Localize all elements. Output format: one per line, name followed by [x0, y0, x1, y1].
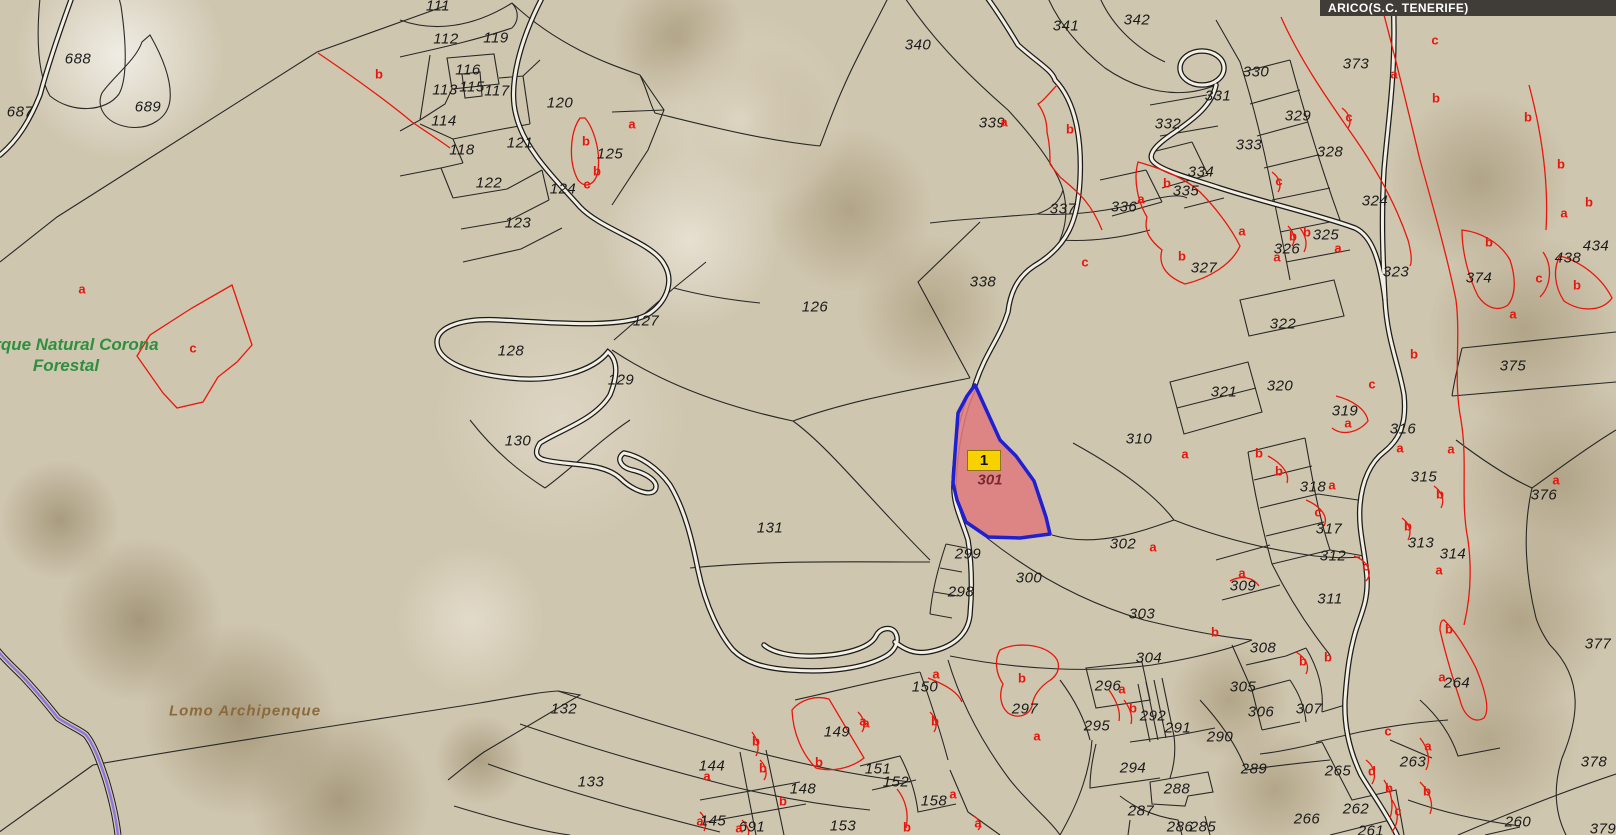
subparcel-label-a: a: [1149, 540, 1156, 555]
subparcel-label-c: c: [1362, 559, 1369, 574]
parcel-label-291: 291: [1165, 720, 1192, 737]
parcel-label-285: 285: [1190, 819, 1217, 835]
subparcel-label-b: b: [1432, 91, 1440, 106]
subparcel-label-b: b: [1445, 622, 1453, 637]
highlighted-parcel-number: 301: [977, 472, 1002, 489]
subparcel-label-c: c: [1431, 33, 1438, 48]
parcel-label-125: 125: [597, 146, 624, 163]
subparcel-label-a: a: [1118, 682, 1125, 697]
parcel-label-329: 329: [1285, 108, 1312, 125]
subparcel-label-b: b: [1410, 347, 1418, 362]
subparcel-label-b: b: [1324, 650, 1332, 665]
parcel-label-434: 434: [1583, 238, 1610, 255]
parcel-label-321: 321: [1211, 384, 1238, 401]
parcel-label-379: 379: [1590, 821, 1616, 835]
parcel-label-303: 303: [1129, 606, 1156, 623]
parcel-label-340: 340: [905, 37, 932, 54]
subparcel-label-b: b: [1303, 225, 1311, 240]
subparcel-label-a: a: [1435, 563, 1442, 578]
parcel-label-315: 315: [1411, 469, 1438, 486]
parcel-label-331: 331: [1205, 88, 1232, 105]
subparcel-label-c: c: [1081, 255, 1088, 270]
subparcel-label-c: c: [583, 177, 590, 192]
subparcel-label-a: a: [1552, 473, 1559, 488]
parcel-label-299: 299: [955, 546, 982, 563]
parcel-label-158: 158: [921, 793, 948, 810]
subparcel-label-a: a: [1238, 566, 1245, 581]
parcel-label-311: 311: [1317, 591, 1342, 608]
parcel-label-333: 333: [1236, 137, 1263, 154]
parcel-label-124: 124: [550, 181, 577, 198]
subparcel-label-b: b: [815, 755, 823, 770]
parcel-label-691: 691: [739, 819, 766, 835]
parcel-label-375: 375: [1500, 358, 1527, 375]
subparcel-label-b: b: [1436, 487, 1444, 502]
parcel-label-377: 377: [1585, 636, 1612, 653]
parcel-label-152: 152: [883, 774, 910, 791]
parcel-label-341: 341: [1053, 18, 1080, 35]
subparcel-label-c: c: [1384, 724, 1391, 739]
ridge-name-label: Lomo Archipenque: [169, 703, 321, 720]
parcel-label-312: 312: [1320, 548, 1347, 565]
subparcel-label-a: a: [1273, 250, 1280, 265]
subparcel-label-b: b: [1423, 784, 1431, 799]
subparcel-label-a: a: [703, 769, 710, 784]
subparcel-label-c: c: [1314, 505, 1321, 520]
parcel-label-153: 153: [830, 818, 857, 835]
parcel-label-114: 114: [431, 113, 456, 130]
subparcel-label-a: a: [862, 716, 869, 731]
parcel-label-294: 294: [1120, 760, 1147, 777]
subparcel-label-a: a: [932, 667, 939, 682]
parcel-label-306: 306: [1248, 704, 1275, 721]
subparcel-label-a: a: [78, 282, 85, 297]
parcel-label-688: 688: [65, 51, 92, 68]
park-name-line1: Parque Natural Corona: [0, 334, 159, 355]
parcel-label-148: 148: [790, 781, 817, 798]
parcel-label-130: 130: [505, 433, 532, 450]
subparcel-label-a: a: [1509, 307, 1516, 322]
parcel-label-336: 336: [1111, 199, 1138, 216]
parcel-label-298: 298: [948, 584, 975, 601]
parcel-label-112: 112: [433, 31, 458, 48]
parcel-label-300: 300: [1016, 570, 1043, 587]
parcel-label-304: 304: [1136, 650, 1163, 667]
subparcel-label-b: b: [1163, 176, 1171, 191]
subparcel-label-a: a: [1000, 115, 1007, 130]
subparcel-label-b: b: [1385, 781, 1393, 796]
parcel-label-378: 378: [1581, 754, 1608, 771]
subparcel-label-a: a: [1238, 224, 1245, 239]
parcel-label-123: 123: [505, 215, 532, 232]
parcel-label-337: 337: [1050, 201, 1077, 218]
subparcel-label-b: b: [1573, 278, 1581, 293]
subparcel-label-a: a: [949, 787, 956, 802]
subparcel-label-b: b: [1275, 464, 1283, 479]
subparcel-label-b: b: [1289, 229, 1297, 244]
subparcel-label-c: c: [1275, 174, 1282, 189]
park-name-label: Parque Natural Corona Forestal: [0, 334, 159, 376]
subparcel-label-b: b: [759, 761, 767, 776]
parcel-label-323: 323: [1383, 264, 1410, 281]
subparcel-label-b: b: [582, 134, 590, 149]
subparcel-label-a: a: [1390, 67, 1397, 82]
subparcel-label-b: b: [1178, 249, 1186, 264]
subparcel-label-b: b: [375, 67, 383, 82]
subparcel-label-b: b: [1299, 654, 1307, 669]
subparcel-label-a: a: [974, 816, 981, 831]
subparcel-label-c: c: [1368, 377, 1375, 392]
parcel-label-335: 335: [1173, 183, 1200, 200]
subparcel-label-b: b: [1524, 110, 1532, 125]
parcel-label-149: 149: [824, 724, 851, 741]
parcel-label-116: 116: [455, 62, 480, 79]
parcel-label-113: 113: [432, 82, 457, 99]
parcel-label-121: 121: [507, 135, 534, 152]
subparcel-label-b: b: [1018, 671, 1026, 686]
parcel-label-307: 307: [1296, 701, 1323, 718]
subparcel-label-a: a: [1334, 241, 1341, 256]
subparcel-label-d: d: [1368, 764, 1376, 779]
subparcel-label-b: b: [1211, 625, 1219, 640]
parcel-label-317: 317: [1316, 521, 1343, 538]
parcel-label-289: 289: [1241, 761, 1268, 778]
parcel-label-145: 145: [700, 813, 727, 830]
parcel-label-313: 313: [1408, 535, 1435, 552]
subparcel-label-c: c: [1394, 804, 1401, 819]
subparcel-label-b: b: [752, 734, 760, 749]
parcel-label-322: 322: [1270, 316, 1297, 333]
parcel-label-132: 132: [551, 701, 578, 718]
subparcel-label-c: c: [1345, 110, 1352, 125]
parcel-label-689: 689: [135, 99, 162, 116]
parcel-label-302: 302: [1110, 536, 1137, 553]
subparcel-label-a: a: [1328, 478, 1335, 493]
parcel-label-266: 266: [1294, 811, 1321, 828]
parcel-label-287: 287: [1128, 803, 1155, 820]
subparcel-label-a: a: [1137, 192, 1144, 207]
parcel-label-328: 328: [1317, 144, 1344, 161]
parcel-label-305: 305: [1230, 679, 1257, 696]
parcel-label-376: 376: [1531, 487, 1558, 504]
parcel-label-327: 327: [1191, 260, 1218, 277]
subparcel-label-a: a: [1560, 206, 1567, 221]
parcel-label-342: 342: [1124, 12, 1151, 29]
parcel-label-133: 133: [578, 774, 605, 791]
parcel-label-314: 314: [1440, 546, 1467, 563]
subparcel-label-b: b: [1129, 701, 1137, 716]
parcel-label-687: 687: [7, 104, 34, 121]
parcel-label-320: 320: [1267, 378, 1294, 395]
parcel-label-127: 127: [633, 313, 660, 330]
stream: [0, 650, 118, 835]
subparcel-label-b: b: [903, 820, 911, 835]
subparcel-label-a: a: [1344, 416, 1351, 431]
parcel-label-119: 119: [483, 30, 508, 47]
subparcel-label-b: b: [1485, 235, 1493, 250]
parcel-label-261: 261: [1358, 823, 1385, 835]
subparcel-label-a: a: [1424, 739, 1431, 754]
parcel-label-263: 263: [1400, 754, 1427, 771]
subparcel-label-b: b: [779, 794, 787, 809]
parcel-label-128: 128: [498, 343, 525, 360]
parcel-label-288: 288: [1164, 781, 1191, 798]
subparcel-label-a: a: [1396, 441, 1403, 456]
parcel-label-131: 131: [757, 520, 784, 537]
parcel-label-260: 260: [1505, 814, 1532, 831]
park-name-line2: Forestal: [0, 355, 159, 376]
parcel-label-120: 120: [547, 95, 574, 112]
parcel-label-308: 308: [1250, 640, 1277, 657]
cadastral-map[interactable]: Parque Natural Corona Forestal Lomo Arch…: [0, 0, 1616, 835]
parcel-label-438: 438: [1555, 250, 1582, 267]
subparcel-label-c: c: [189, 341, 196, 356]
parcel-label-264: 264: [1444, 675, 1471, 692]
parcel-label-295: 295: [1084, 718, 1111, 735]
parcel-label-374: 374: [1466, 270, 1493, 287]
subparcel-label-b: b: [931, 714, 939, 729]
subparcel-label-b: b: [1255, 446, 1263, 461]
parcel-label-126: 126: [802, 299, 829, 316]
parcel-label-118: 118: [449, 142, 474, 159]
parcel-label-117: 117: [484, 83, 509, 100]
parcel-label-310: 310: [1126, 431, 1153, 448]
parcel-label-330: 330: [1243, 64, 1270, 81]
parcel-label-316: 316: [1390, 421, 1417, 438]
subparcel-label-a: a: [696, 814, 703, 829]
parcel-label-297: 297: [1012, 701, 1039, 718]
parcel-label-111: 111: [426, 0, 450, 15]
parcel-label-332: 332: [1155, 116, 1182, 133]
subparcel-label-a: a: [1438, 670, 1445, 685]
subparcel-label-a: a: [735, 821, 742, 835]
parcel-label-292: 292: [1140, 708, 1167, 725]
subparcel-label-a: a: [1181, 447, 1188, 462]
parcel-label-324: 324: [1362, 193, 1389, 210]
parcel-label-290: 290: [1207, 729, 1234, 746]
parcel-label-115: 115: [459, 79, 484, 96]
parcel-label-373: 373: [1343, 56, 1370, 73]
parcel-label-265: 265: [1325, 763, 1352, 780]
parcel-label-296: 296: [1095, 678, 1122, 695]
parcel-label-318: 318: [1300, 479, 1327, 496]
parcel-label-334: 334: [1188, 164, 1215, 181]
parcel-label-129: 129: [608, 372, 635, 389]
subparcel-label-a: a: [628, 117, 635, 132]
subparcel-label-b: b: [593, 164, 601, 179]
subparcel-label-b: b: [1066, 122, 1074, 137]
subparcel-label-c: c: [1535, 271, 1542, 286]
parcel-label-338: 338: [970, 274, 997, 291]
subparcel-label-b: b: [1557, 157, 1565, 172]
parcel-label-262: 262: [1343, 801, 1370, 818]
subparcel-label-a: a: [1447, 442, 1454, 457]
subparcel-label-b: b: [1585, 195, 1593, 210]
subparcel-label-b: b: [1404, 519, 1412, 534]
selection-badge[interactable]: 1: [967, 450, 1001, 471]
parcel-label-122: 122: [476, 175, 503, 192]
subparcel-label-a: a: [1033, 729, 1040, 744]
municipality-banner: ARICO(S.C. TENERIFE): [1320, 0, 1616, 16]
